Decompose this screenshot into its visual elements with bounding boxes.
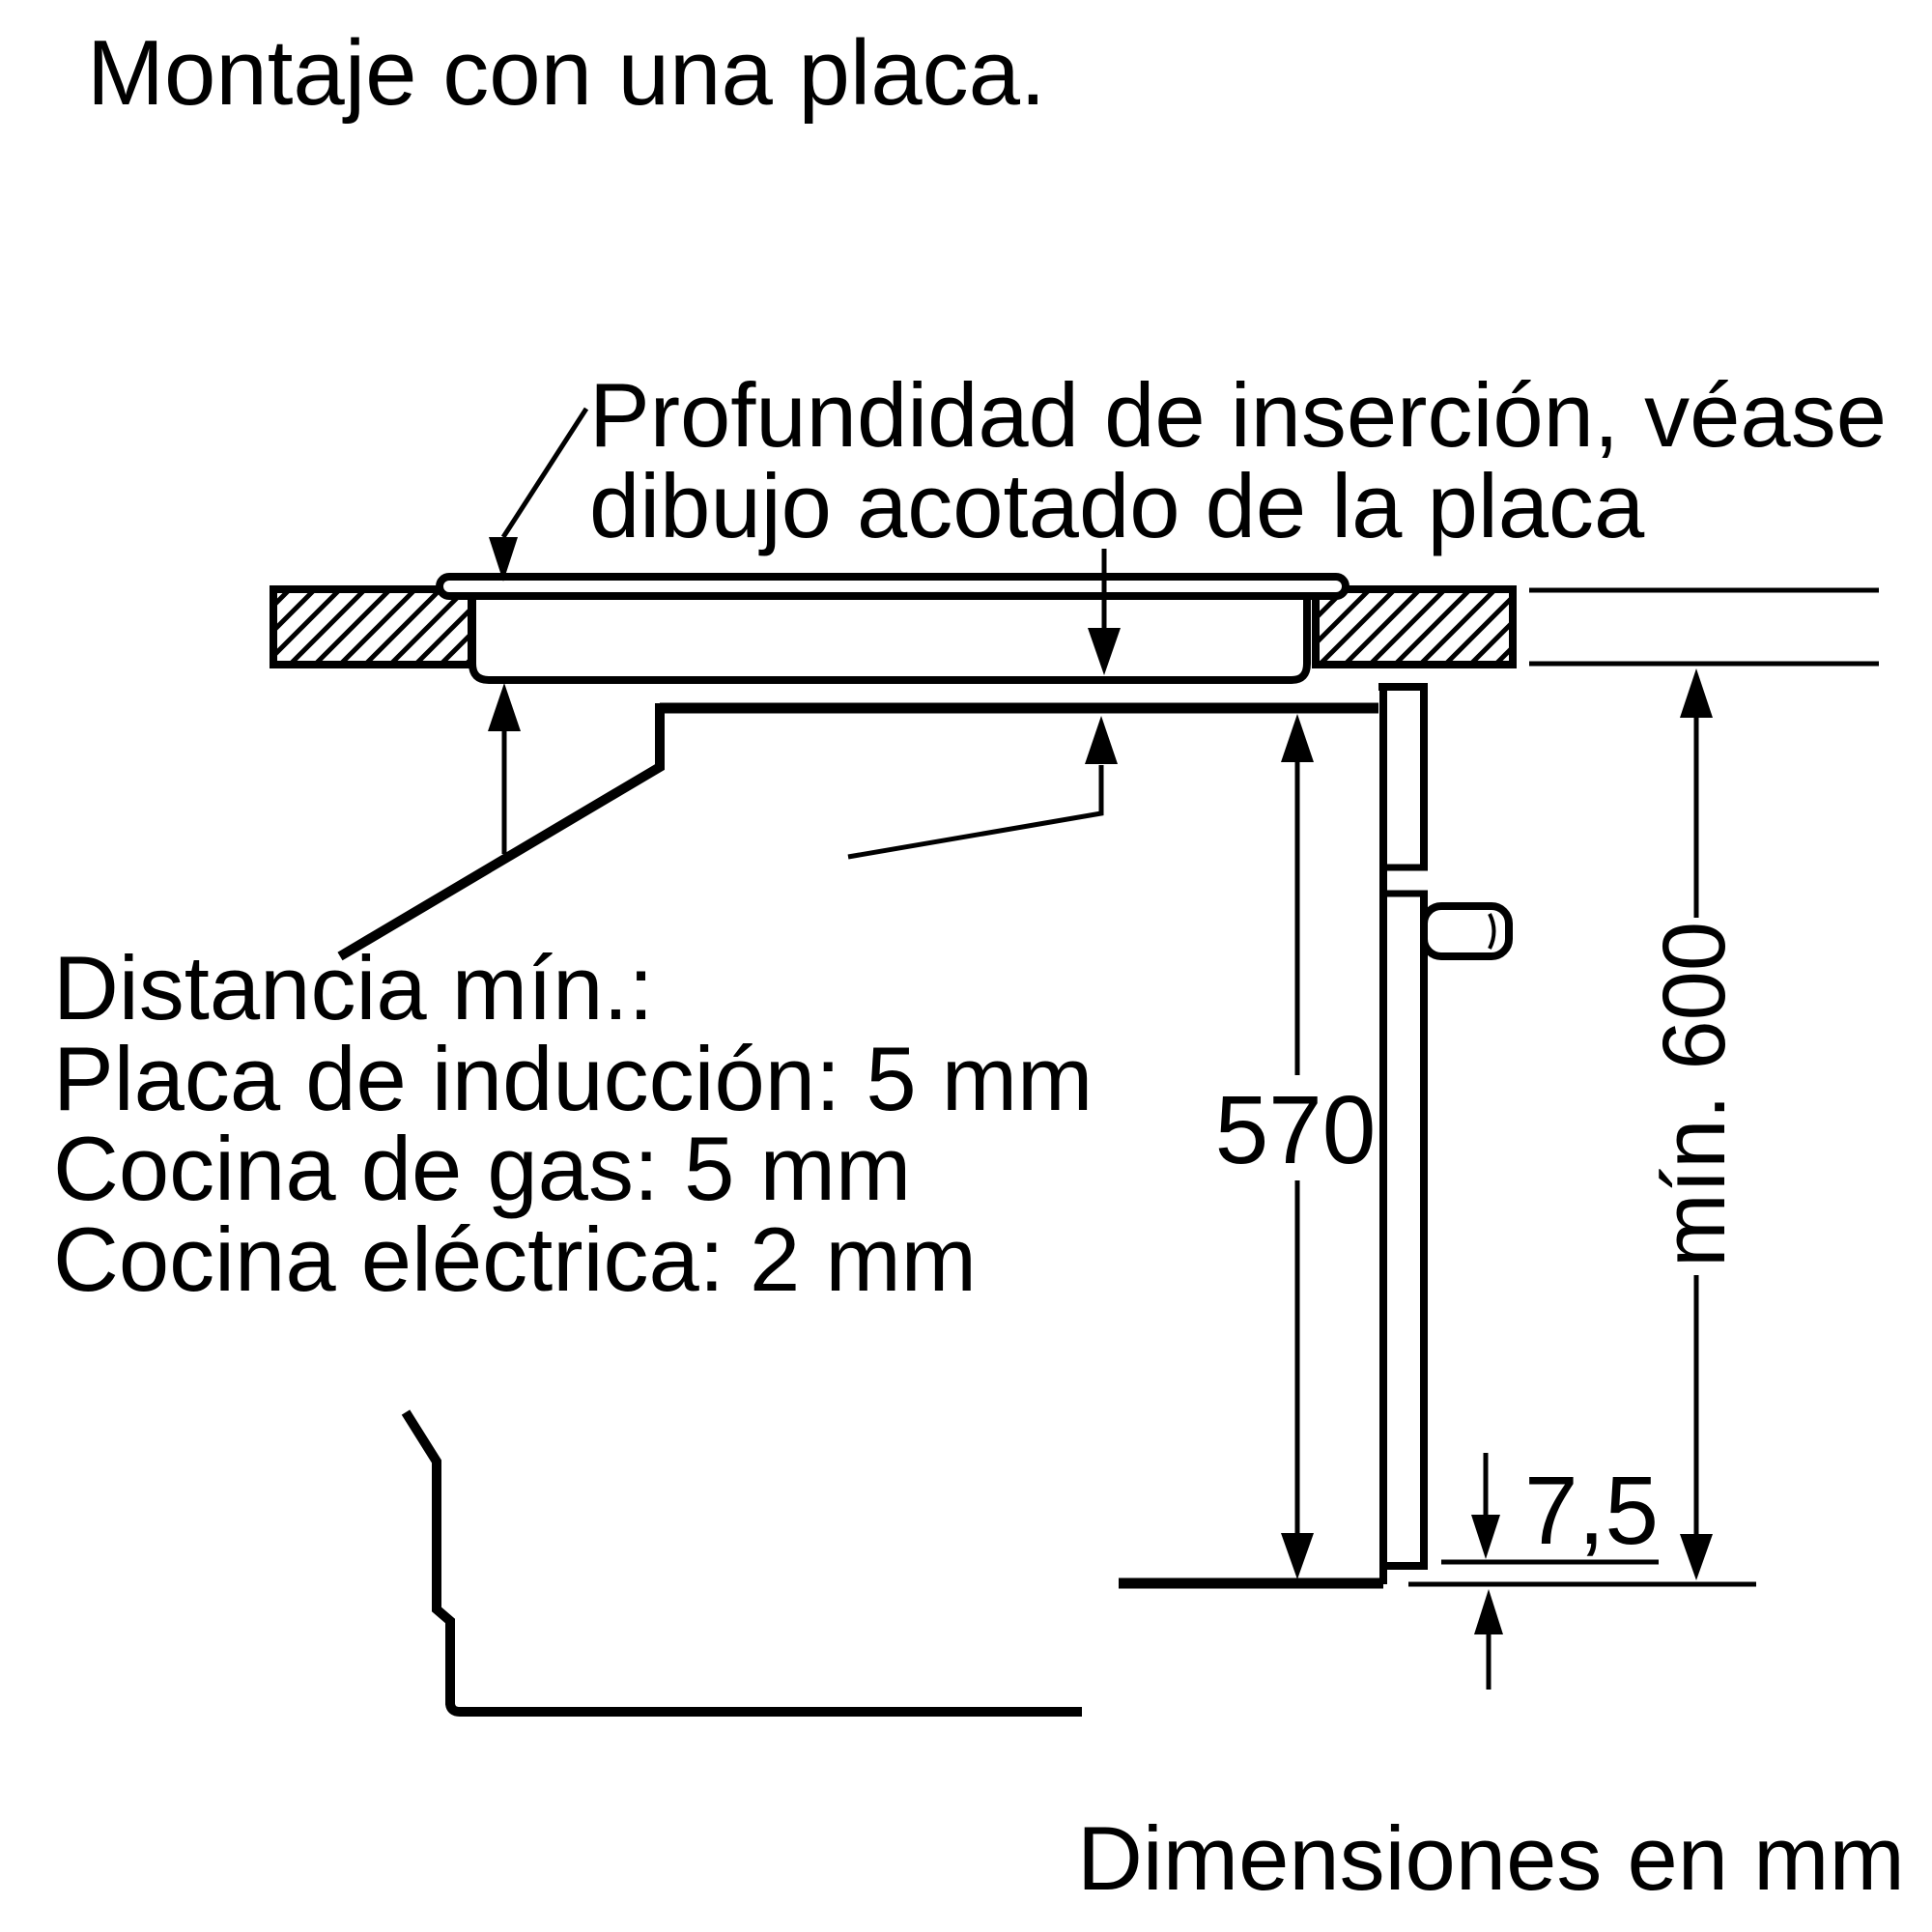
dimension-min600-label: mín. 600 — [1645, 922, 1744, 1267]
units-note: Dimensiones en mm — [1077, 1807, 1905, 1909]
min-distance-leader-arrow — [848, 716, 1118, 857]
hob-glass-top — [440, 577, 1346, 596]
min-distance-item-electric: Cocina eléctrica: 2 mm — [53, 1208, 977, 1310]
countertop-left-section — [273, 589, 471, 665]
min-distance-item-gas: Cocina de gas: 5 mm — [53, 1118, 911, 1219]
min-distance-item-induction: Placa de inducción: 5 mm — [53, 1028, 1093, 1129]
hob-underside-arrow — [488, 683, 521, 854]
countertop-right-extension — [1529, 590, 1879, 664]
dimension-75 — [1471, 1453, 1503, 1690]
cabinet-lower-profile — [406, 1412, 1082, 1712]
min-distance-heading: Distancia mín.: — [53, 937, 654, 1038]
page-title: Montaje con una placa. — [87, 21, 1046, 125]
technical-drawing: Montaje con una placa. Profundidad de in… — [0, 0, 1932, 1932]
insertion-depth-note-line1: Profundidad de inserción, véase — [589, 364, 1887, 466]
dimension-75-label: 7,5 — [1524, 1457, 1659, 1565]
insertion-depth-note-line2: dibujo acotado de la placa — [589, 455, 1645, 556]
countertop-right-section — [1316, 589, 1513, 665]
cabinet-upper-diagonal — [340, 703, 660, 956]
oven-knob — [1424, 906, 1509, 956]
insertion-depth-leader-arrow — [489, 409, 586, 582]
installation-diagram-page: Montaje con una placa. Profundidad de in… — [0, 0, 1932, 1932]
dimension-570-label: 570 — [1215, 1076, 1377, 1184]
